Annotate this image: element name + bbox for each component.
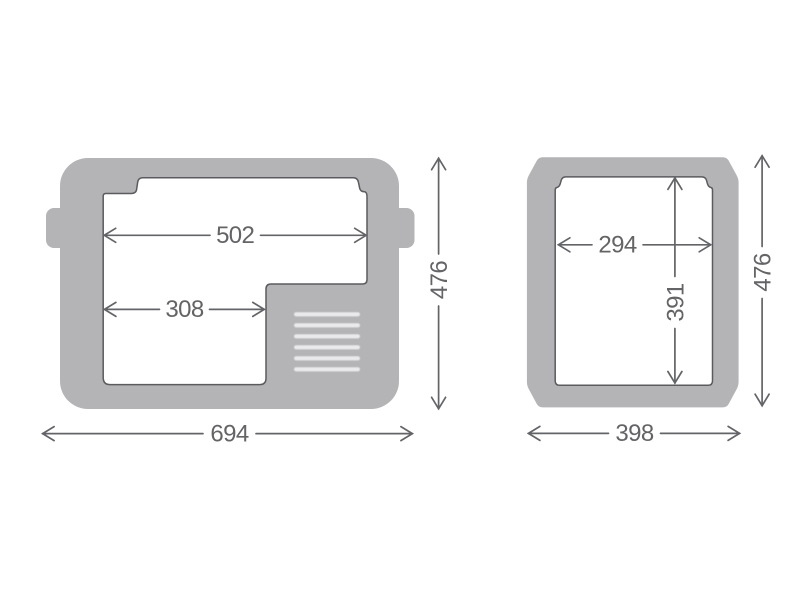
svg-text:294: 294 bbox=[598, 232, 636, 259]
svg-text:476: 476 bbox=[750, 253, 777, 291]
svg-text:398: 398 bbox=[615, 420, 653, 447]
svg-text:308: 308 bbox=[165, 296, 203, 323]
svg-text:694: 694 bbox=[210, 421, 248, 448]
svg-text:476: 476 bbox=[426, 261, 453, 299]
svg-text:502: 502 bbox=[216, 222, 254, 249]
svg-text:391: 391 bbox=[663, 283, 690, 321]
